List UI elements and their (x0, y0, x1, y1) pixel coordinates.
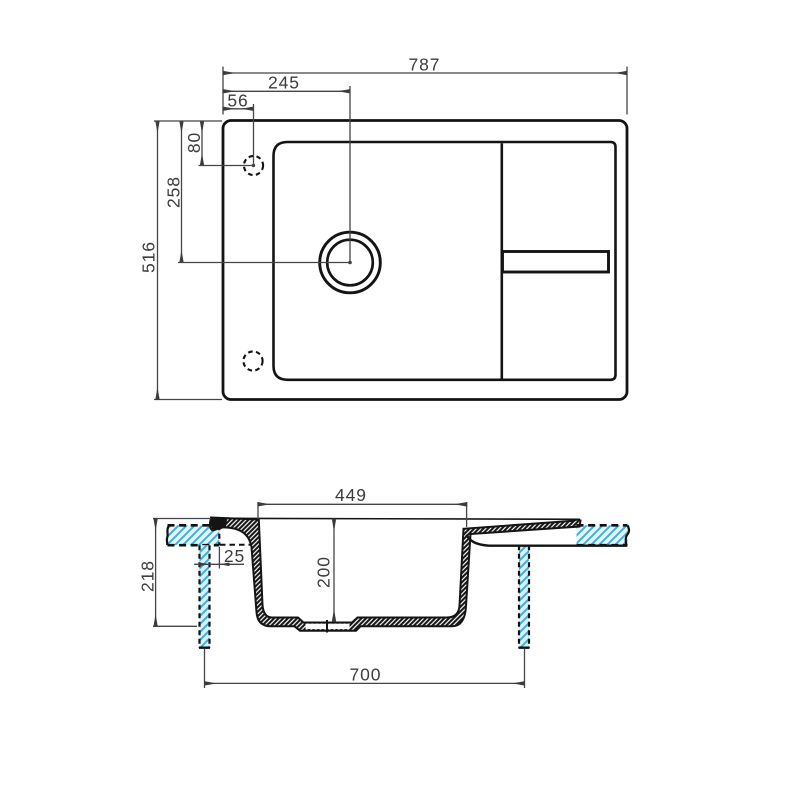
svg-text:218: 218 (138, 560, 158, 592)
svg-text:516: 516 (139, 241, 159, 273)
svg-text:245: 245 (268, 73, 300, 93)
svg-text:449: 449 (335, 485, 367, 505)
svg-text:25: 25 (224, 546, 245, 566)
svg-text:200: 200 (314, 556, 334, 588)
svg-text:787: 787 (409, 55, 441, 75)
svg-text:700: 700 (350, 665, 382, 685)
svg-text:258: 258 (164, 176, 184, 208)
svg-text:80: 80 (184, 132, 204, 153)
svg-text:56: 56 (227, 90, 248, 110)
